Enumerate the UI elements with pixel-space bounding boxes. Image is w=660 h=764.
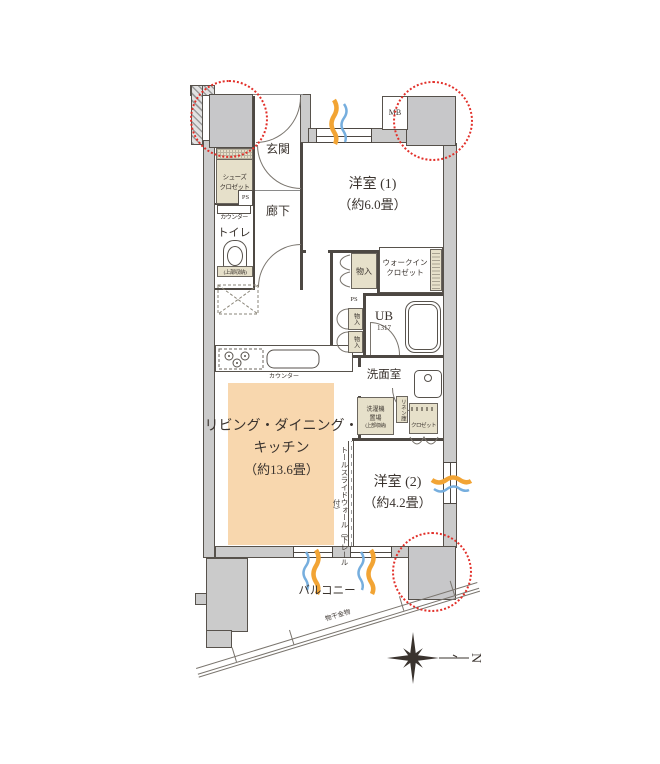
toilet-seat (227, 246, 243, 266)
bathtub-inner (408, 304, 438, 350)
floor-plan: MB トールスライドウォール（下レール付） リビング・ダイニング・ キッチン （… (0, 0, 660, 764)
balcony-wall-stub (195, 593, 207, 605)
toilet-upper-storage: (上部収納) (217, 266, 253, 277)
ldk-label-size: （約13.6畳） (189, 462, 374, 478)
monoire-lower-door (335, 331, 349, 353)
wall-left (203, 140, 215, 558)
shoes-closet-label-1: シューズ (223, 171, 247, 181)
yoshitsu1-size: （約6.0畳） (310, 197, 435, 213)
closet-hanger-dots (411, 407, 436, 411)
wic-hanger-pipe (432, 251, 440, 289)
corridor-ldk-door-arc (258, 244, 301, 287)
ldk-label-line2: キッチン (189, 440, 374, 458)
wall-ub-top (363, 293, 443, 296)
washer-label-1: 洗濯機 (366, 404, 384, 413)
ps-mid-label: PS (346, 296, 362, 304)
toilet-upper-storage-label: (上部収納) (224, 268, 247, 276)
kitchen-counter-label: カウンター (262, 374, 306, 382)
airflow-icon-top (328, 100, 352, 146)
sink-icon (266, 349, 320, 369)
ub-size-label: 1317 (366, 324, 402, 333)
pillar-highlight-bottom-right (392, 532, 472, 612)
yoshitsu2-size: （約4.2畳） (352, 495, 443, 511)
monoire-hall-door (333, 253, 351, 289)
monoire-hall-label: 物入 (356, 266, 372, 277)
monoire-upper: 物入 (348, 308, 363, 330)
senmen-label: 洗面室 (360, 368, 408, 382)
stove-icon (218, 348, 264, 370)
wall-bottom-left-segment (215, 546, 295, 558)
yoshitsu2-label: 洋室 (2) (352, 474, 443, 492)
balcony-wall-left-step (206, 630, 232, 648)
entry-threshold-line (253, 94, 303, 95)
wall-senmen-left-a (358, 357, 361, 367)
closet-bifold-door (409, 436, 439, 452)
closet-label: クロゼット (411, 421, 436, 429)
pillar-highlight-top-left (190, 80, 268, 158)
monoire-upper-label: 物入 (352, 313, 358, 325)
rouka-label: 廊下 (255, 204, 301, 219)
wall-right (443, 143, 457, 463)
balcony-wall-left (206, 558, 248, 632)
balcony-label: バルコニー (295, 584, 359, 598)
ps-entry-label: PS (238, 194, 253, 202)
genkan-label: 玄関 (255, 142, 301, 157)
ldk-label-line1: リビング・ダイニング・ (189, 418, 374, 436)
refrigerator-space (217, 284, 259, 315)
wic-label-1: ウォークイン (379, 258, 431, 267)
compass-rose: N (383, 628, 493, 690)
compass-north-label: N (468, 653, 483, 663)
toilet-label: トイレ (213, 227, 255, 241)
linen-storage: リネン庫 (396, 396, 408, 423)
monoire-lower: 物入 (348, 331, 363, 353)
wic-label-2: クロゼット (379, 268, 431, 277)
toilet-counter (217, 205, 251, 214)
vanity-faucet (424, 374, 432, 382)
pillar-highlight-top-right (393, 81, 473, 161)
yoshitsu1-label: 洋室 (1) (310, 176, 435, 194)
monoire-upper-door (335, 308, 349, 330)
linen-storage-label: リネン庫 (399, 399, 405, 421)
genkan-step-line (255, 190, 300, 191)
monoire-hall: 物入 (351, 253, 377, 289)
monoire-lower-label: 物入 (352, 336, 358, 348)
ub-label: UB (366, 308, 402, 324)
toilet-counter-label: カウンター (214, 215, 254, 223)
